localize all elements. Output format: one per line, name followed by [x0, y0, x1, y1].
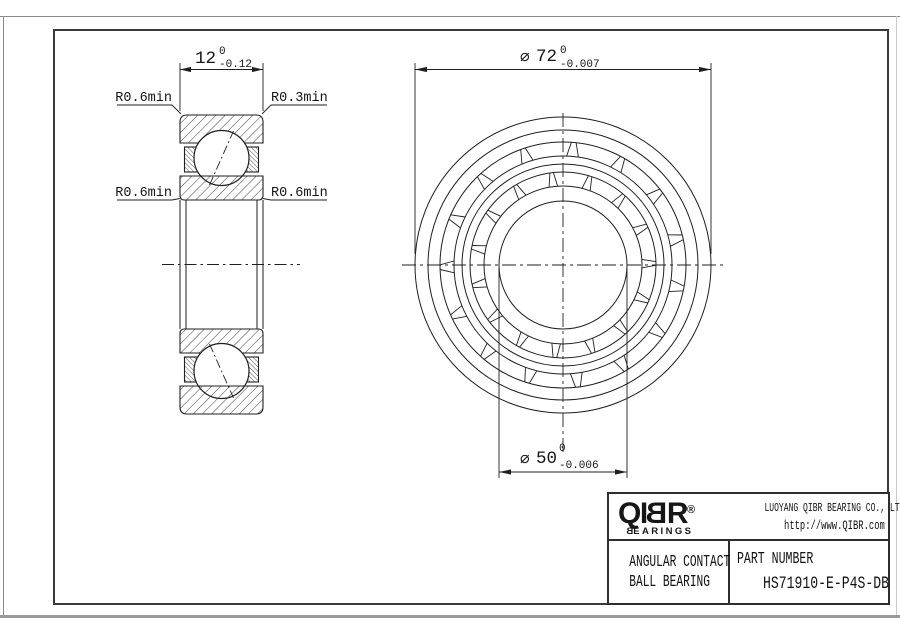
inner-ring-top-section — [180, 176, 263, 200]
width-dim-value: 12 — [195, 49, 216, 69]
arrowhead-right — [699, 67, 711, 72]
bore-dim-symbol: ∅ — [520, 449, 530, 468]
company-info: LUOYANG QIBR BEARING CO., LTD http://www… — [730, 499, 900, 534]
section-view — [117, 63, 327, 414]
arrowhead-right — [615, 469, 627, 474]
registered-mark: ® — [687, 504, 695, 516]
bore-dim-tol-lower: -0.006 — [559, 460, 599, 472]
part-number-label: PART NUMBER — [737, 550, 869, 569]
logo-subtext: BEARINGS — [624, 526, 730, 537]
arrowhead-left — [180, 67, 191, 72]
product-type-line1: ANGULAR CONTACT — [629, 553, 708, 573]
radius-label-bottom-left: R0.6min — [115, 186, 172, 201]
width-dim-tol-lower: -0.12 — [219, 59, 252, 71]
logo-wordmark: QIBR® — [618, 497, 730, 527]
arrowhead-right — [252, 67, 263, 72]
od-dim-tol-lower: -0.007 — [560, 59, 600, 71]
arrowhead-left — [415, 67, 427, 72]
part-number-cell: PART NUMBER HS71910-E-P4S-DB — [730, 541, 900, 605]
title-block-detail-row: ANGULAR CONTACT BALL BEARING PART NUMBER… — [609, 541, 888, 605]
arrowhead-left — [499, 469, 511, 474]
company-logo: QIBR® BEARINGS — [609, 497, 730, 537]
front-view — [402, 63, 724, 478]
drawing-sheet: 12 0 -0.12 R0.6min R0.3min R0.6min R0.6m… — [0, 0, 900, 636]
bore-dim-tol-upper: 0 — [559, 443, 566, 455]
company-website: http://www.QIBR.com — [763, 517, 900, 534]
od-dim-tol-upper: 0 — [560, 45, 567, 57]
width-dim-tol-upper: 0 — [219, 46, 226, 58]
part-number-value: HS71910-E-P4S-DB — [763, 574, 889, 594]
title-block-header-row: QIBR® BEARINGS LUOYANG QIBR BEARING CO.,… — [609, 494, 888, 541]
radius-label-bottom-right: R0.6min — [271, 186, 328, 201]
title-block: QIBR® BEARINGS LUOYANG QIBR BEARING CO.,… — [607, 492, 890, 605]
od-dim-symbol: ∅ — [520, 47, 530, 66]
outer-ring-bottom-section — [180, 386, 263, 414]
radius-label-top-right: R0.3min — [271, 91, 328, 106]
logo-mirrored-b: B — [647, 501, 667, 527]
bore-dim-value: 50 — [536, 449, 557, 469]
radius-label-top-left: R0.6min — [115, 91, 172, 106]
od-dim-value: 72 — [536, 47, 557, 67]
product-type-cell: ANGULAR CONTACT BALL BEARING — [609, 541, 730, 605]
company-name: LUOYANG QIBR BEARING CO., LTD — [764, 500, 900, 517]
product-type-line2: BALL BEARING — [629, 573, 708, 593]
